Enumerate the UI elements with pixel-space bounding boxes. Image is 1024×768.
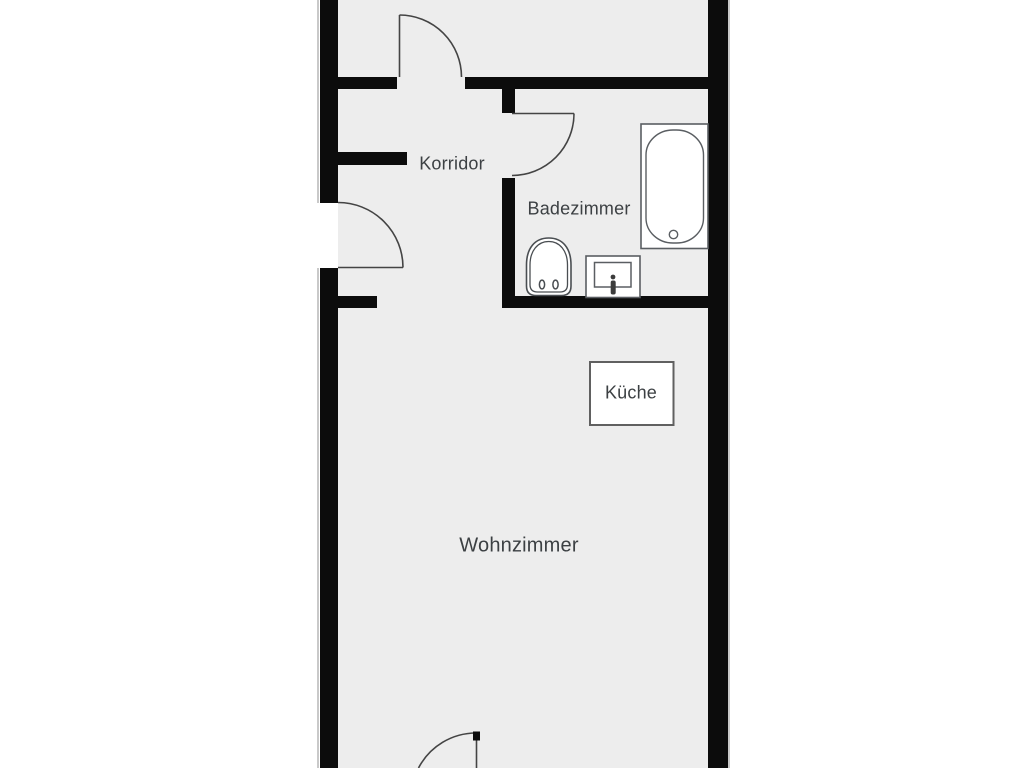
door-top-arc bbox=[400, 15, 462, 77]
toilet-icon bbox=[527, 238, 572, 296]
room-label-badezimmer: Badezimmer bbox=[527, 199, 630, 220]
washbasin-icon bbox=[586, 256, 640, 298]
door-living-room-arc bbox=[419, 733, 477, 768]
bathtub-basin bbox=[646, 130, 704, 243]
washbasin-faucet-icon bbox=[611, 281, 616, 295]
room-label-korridor: Korridor bbox=[419, 154, 485, 175]
door-top bbox=[400, 15, 462, 77]
door-entrance bbox=[338, 203, 403, 268]
room-label-wohnzimmer: Wohnzimmer bbox=[459, 535, 578, 558]
room-label-kueche: Küche bbox=[605, 383, 657, 404]
door-bathroom-arc bbox=[512, 114, 574, 176]
toilet-outer bbox=[527, 238, 572, 296]
door-living-room bbox=[419, 732, 481, 768]
door-entrance-arc bbox=[338, 203, 403, 268]
door-living-room-handle bbox=[473, 732, 480, 741]
door-bathroom bbox=[512, 114, 574, 176]
bathtub-icon bbox=[641, 124, 708, 249]
washbasin-drain-icon bbox=[611, 275, 616, 280]
floor-plan: Korridor Badezimmer Küche Wohnzimmer bbox=[0, 0, 1024, 768]
plan-overlay bbox=[0, 0, 1024, 768]
